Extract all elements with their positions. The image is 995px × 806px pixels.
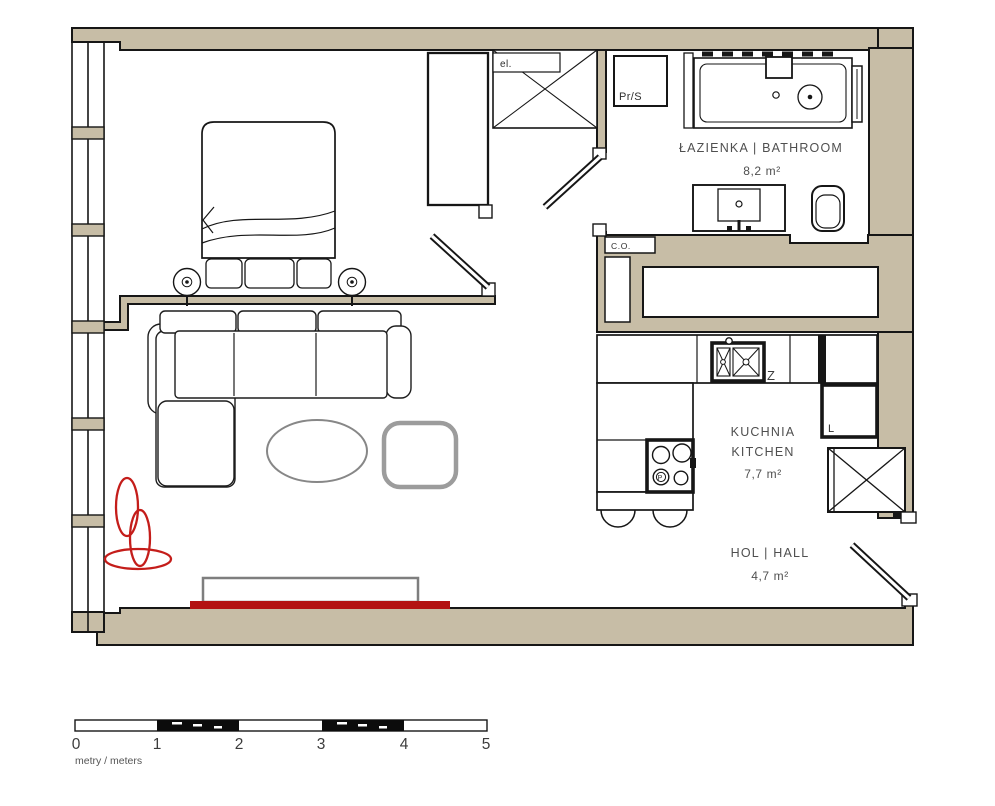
wall-corridor <box>597 50 606 152</box>
toilet <box>812 186 844 231</box>
kitchen-area: 7,7 m² <box>744 467 782 481</box>
kitchen-name-pl: KUCHNIA <box>731 425 796 439</box>
tv-screen <box>190 601 450 609</box>
door-leaf-fill <box>852 545 909 598</box>
scale-tick: 3 <box>317 736 326 753</box>
sink-drain <box>743 359 749 365</box>
window-mullion <box>72 418 104 430</box>
plant-leaf <box>116 478 138 536</box>
lamp-dot <box>350 280 354 284</box>
bedroom-furniture <box>174 50 598 306</box>
pillow <box>245 259 294 288</box>
hall-name: HOL | HALL <box>731 546 810 560</box>
scale-unit: metry / meters <box>75 755 142 767</box>
wall-bottom <box>97 603 913 645</box>
bedroom-door <box>432 205 495 296</box>
bar-stool <box>601 510 635 527</box>
coffee-table <box>267 420 367 482</box>
window-mullion <box>72 515 104 527</box>
window-mullion <box>72 127 104 139</box>
wall-top <box>72 28 913 50</box>
scale-bar-notch <box>193 724 202 727</box>
floor-plan-drawing: ŁAZIENKA | BATHROOM 8,2 m² KUCHNIA KITCH… <box>0 0 995 806</box>
bathroom-area: 8,2 m² <box>743 164 781 178</box>
scale-tick: 0 <box>72 736 81 753</box>
washbasin <box>718 189 760 221</box>
door-pivot <box>901 512 916 523</box>
wall-bathroom-right <box>869 48 913 244</box>
scale-tick: 5 <box>482 736 491 753</box>
scale-bar: 0 1 2 3 4 5 metry / meters <box>72 720 491 767</box>
stove-handle <box>690 458 696 468</box>
living-room-furniture <box>148 311 456 609</box>
tub-drain-dot <box>808 95 813 100</box>
heating-label: C.O. <box>611 241 631 251</box>
bathroom-door <box>545 148 606 236</box>
plant-leaf <box>130 510 150 566</box>
scale-tick: 4 <box>400 736 409 753</box>
wardrobe <box>428 53 488 205</box>
kitchen-name-en: KITCHEN <box>731 445 794 459</box>
window-mullion <box>72 224 104 236</box>
scale-bar-notch <box>337 722 347 725</box>
door-leaf-fill <box>545 157 600 207</box>
scale-bar-notch <box>214 726 222 729</box>
hall-area: 4,7 m² <box>751 569 789 583</box>
entrance-door <box>852 512 917 606</box>
stove <box>647 440 693 492</box>
tub-partition <box>684 53 693 128</box>
plant-sketch <box>105 478 171 569</box>
scale-bar-notch <box>172 722 182 725</box>
sofa-chaise-cushion <box>158 401 234 486</box>
bar-stool <box>653 510 687 527</box>
sofa-back-cushion <box>238 311 316 333</box>
pillow <box>297 259 331 288</box>
hob-label: P <box>658 475 663 482</box>
window-mullion <box>72 321 104 333</box>
pillow <box>206 259 242 288</box>
tub-faucet <box>766 57 792 78</box>
door-pivot <box>593 224 606 236</box>
fridge-label: L <box>828 423 835 435</box>
duct-box <box>605 257 630 322</box>
sink-unit <box>712 343 764 381</box>
side-table <box>384 423 456 487</box>
washer-dryer-label: Pr/S <box>619 91 642 103</box>
cabinet-divider-bold <box>818 335 826 383</box>
scale-bar-notch <box>358 724 367 727</box>
lamp-dot <box>185 280 189 284</box>
basin-mark <box>746 226 751 231</box>
bathroom-name: ŁAZIENKA | BATHROOM <box>679 141 843 155</box>
electrical-label: el. <box>500 59 512 70</box>
scale-tick: 1 <box>153 736 162 753</box>
tv-console <box>203 578 418 602</box>
sofa-back-cushion <box>160 311 236 333</box>
floor-plan: ŁAZIENKA | BATHROOM 8,2 m² KUCHNIA KITCH… <box>0 0 995 806</box>
sofa-seat <box>175 331 387 398</box>
door-leaf-fill <box>432 236 488 287</box>
scale-bar-notch <box>379 726 387 729</box>
shaft-counter <box>643 267 878 317</box>
hall-furniture <box>828 448 905 519</box>
kitchen-bar-edge <box>597 492 693 510</box>
sink-drain <box>721 360 726 365</box>
scale-bar-body <box>75 720 487 731</box>
door-pivot <box>479 205 492 218</box>
scale-tick: 2 <box>235 736 244 753</box>
sink-faucet <box>726 338 732 344</box>
sink-label: Z <box>767 368 775 383</box>
basin-mark <box>727 226 732 231</box>
sofa-armrest-right <box>386 326 411 398</box>
